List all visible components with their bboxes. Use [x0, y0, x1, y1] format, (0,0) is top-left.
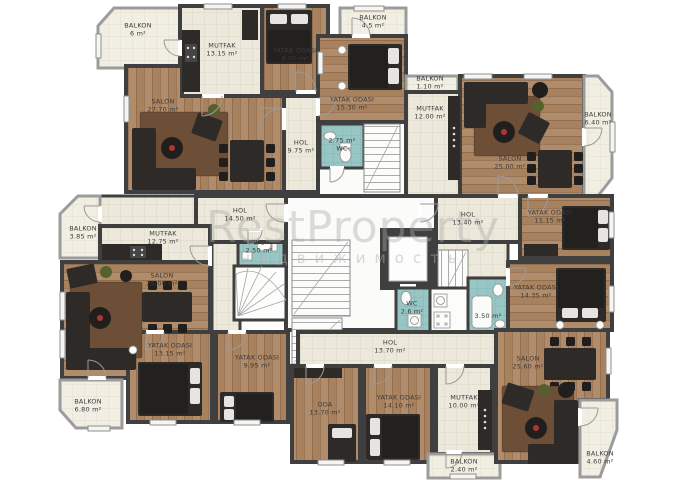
room-label-bedroom-1530: YATAK ODASI15.30 m² [330, 96, 374, 113]
bed [366, 414, 420, 460]
room-label-salon-2560: SALON25.60 m² [512, 355, 543, 372]
dining-set [142, 281, 192, 333]
room-label-bedroom-1435: YATAK ODASI14.35 m² [514, 284, 558, 301]
room-label-salon-2500-l: SALON25.00 m² [146, 272, 177, 289]
room-label-kitchen-1315: MUTFAK13.15 m² [206, 42, 237, 59]
floor-plan-page: RestProperty недвижимость BALKON6 m² MUT… [0, 0, 679, 480]
room-label-salon-2770: SALON27.70 m² [147, 98, 178, 115]
room-label-hall-1370: HOL13.70 m² [374, 339, 405, 356]
balcony-6-40 [584, 76, 612, 196]
bed [220, 392, 274, 422]
room-label-hall-975: HOL9.75 m² [288, 139, 315, 156]
room-label-kitchen-1000: MUTFAK10.00 m² [448, 394, 479, 411]
bed [328, 424, 356, 462]
room-label-hall-1340: HOL13.40 m² [452, 211, 483, 228]
room-label-wc-26: WC2.6 m² [401, 300, 424, 317]
room-label-wc-275: 2.75 m²WC [329, 137, 356, 154]
room-label-balcony-240: BALKON2.40 m² [450, 458, 478, 475]
room-label-balcony-680: BALKON6.80 m² [74, 398, 102, 415]
bed [556, 268, 606, 329]
room-label-kitchen-1275: MUTFAK12.75 m² [147, 230, 178, 247]
room-label-balcony-640: BALKON6.40 m² [584, 111, 612, 128]
room-label-bedroom-1315: YATAK ODASI13.15 m² [148, 342, 192, 359]
room-label-bedroom-995: YATAK ODASI9.95 m² [235, 354, 279, 371]
room-label-balcony-110: BALKON1.10 m² [416, 75, 444, 92]
dining-set [219, 140, 275, 182]
room-label-bedroom-1115: YATAK ODASI11.15 m² [528, 209, 572, 226]
wardrobe [294, 368, 342, 378]
room-label-wc-250: WC2.50 m² [246, 239, 273, 256]
room-label-bath-350: 3.50 m² [475, 312, 502, 320]
room-label-balcony-45: BALKON4.5 m² [359, 14, 387, 31]
room-label-kitchen-1200: MUTFAK12.00 m² [414, 105, 445, 122]
room-label-bedroom-1410: YATAK ODASI14.10 m² [377, 394, 421, 411]
room-label-room-1370: ODA13.70 m² [309, 401, 340, 418]
kitchen-counter [448, 96, 460, 180]
room-label-balcony-385: BALKON3.85 m² [69, 225, 97, 242]
dining-set [527, 150, 583, 188]
kitchen-counter [478, 390, 492, 450]
elevator [380, 228, 436, 290]
room-label-salon-2500-tr: SALON25.00 m² [494, 155, 525, 172]
room-label-balcony-6: BALKON6 m² [124, 22, 152, 39]
living-set [501, 382, 578, 464]
living-set [464, 82, 550, 156]
room-label-balcony-460: BALKON4.60 m² [586, 450, 614, 467]
dining-set [544, 337, 596, 391]
room-label-bedroom-900: YATAK ODASI9.00 m² [273, 47, 317, 64]
room-label-hall-1450: HOL14.50 m² [224, 207, 255, 224]
